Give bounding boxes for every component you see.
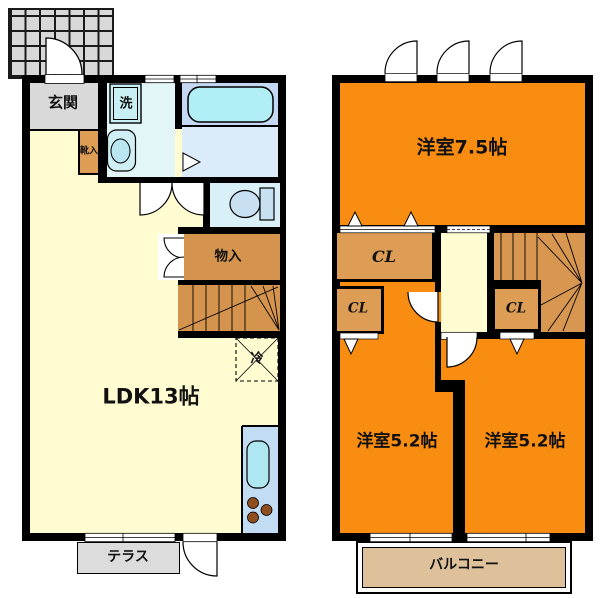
washroom xyxy=(107,83,175,177)
toilet-room xyxy=(207,183,280,227)
genkan-label: 玄関 xyxy=(48,96,78,111)
wall xyxy=(178,227,280,234)
wall xyxy=(203,183,210,227)
closet-right-label: CL xyxy=(506,302,526,316)
wall xyxy=(453,380,465,533)
kitchen-counter xyxy=(242,426,278,533)
bedroom52-left-label: 洋室5.2帖 xyxy=(356,434,437,451)
wall xyxy=(98,129,107,177)
shoe-cabinet-label: 靴入 xyxy=(80,148,98,157)
balcony-label: バルコニー xyxy=(429,558,499,572)
storage-door-strip xyxy=(158,234,184,280)
washer-label: 洗 xyxy=(119,98,132,111)
closet-left-label: CL xyxy=(348,302,368,316)
wall xyxy=(477,332,585,339)
entrance-porch-tiles xyxy=(8,8,114,79)
floor-plan-canvas: 玄関 靴入 洗 物入 冷 LDK13帖 テラス 洋室7.5帖 CL CL CL … xyxy=(0,0,600,598)
hallway-2f xyxy=(441,233,487,333)
fridge-label: 冷 xyxy=(250,353,263,366)
bedroom52-right-label: 洋室5.2帖 xyxy=(484,434,565,451)
wall xyxy=(178,331,280,338)
wall xyxy=(435,233,441,292)
terrace-label: テラス xyxy=(107,550,149,564)
stairs-1f xyxy=(178,285,280,331)
bathroom-lower xyxy=(182,126,278,177)
storage-label: 物入 xyxy=(215,250,242,264)
ldk-label: LDK13帖 xyxy=(102,387,199,408)
closet-wide-label: CL xyxy=(372,249,396,265)
bedroom75-label: 洋室7.5帖 xyxy=(417,139,508,158)
bathroom-upper xyxy=(182,83,278,126)
